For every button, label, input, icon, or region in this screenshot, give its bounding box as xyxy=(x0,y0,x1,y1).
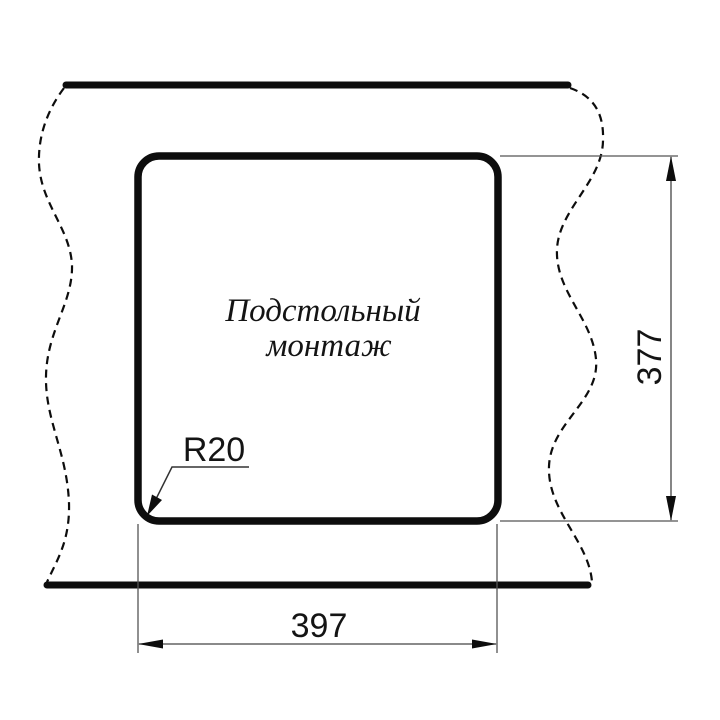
height-dimension-arrow-up-icon xyxy=(666,156,676,181)
height-dimension-label: 377 xyxy=(631,329,669,386)
radius-leader-arrow-icon xyxy=(147,495,162,517)
width-dimension-label: 397 xyxy=(291,607,348,645)
corner-radius-label: R20 xyxy=(183,431,245,469)
mounting-type-label-line1: Подстольный xyxy=(224,293,421,329)
height-dimension-arrow-down-icon xyxy=(666,496,676,521)
mounting-type-label-line2: монтаж xyxy=(265,328,392,364)
technical-drawing: Подстольный монтаж R20 397 377 xyxy=(0,0,720,720)
break-line-left xyxy=(39,88,72,582)
break-line-right xyxy=(549,88,603,582)
width-dimension-arrow-right-icon xyxy=(472,640,497,649)
radius-leader-line xyxy=(151,467,249,509)
undermount-installation-diagram: Подстольный монтаж R20 397 377 xyxy=(0,0,720,720)
width-dimension-arrow-left-icon xyxy=(138,640,163,649)
